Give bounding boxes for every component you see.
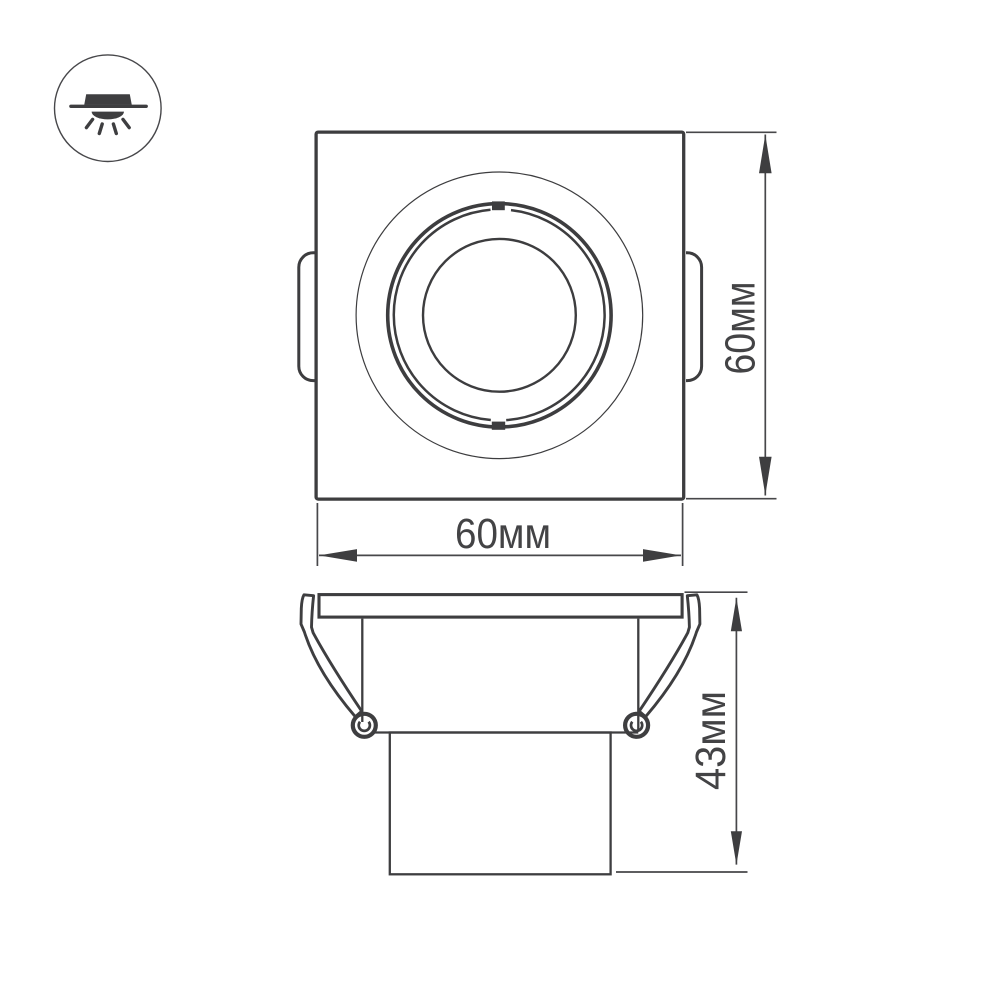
svg-text:60мм: 60мм [455, 511, 551, 558]
svg-text:60мм: 60мм [717, 282, 764, 375]
svg-text:43мм: 43мм [688, 691, 735, 790]
